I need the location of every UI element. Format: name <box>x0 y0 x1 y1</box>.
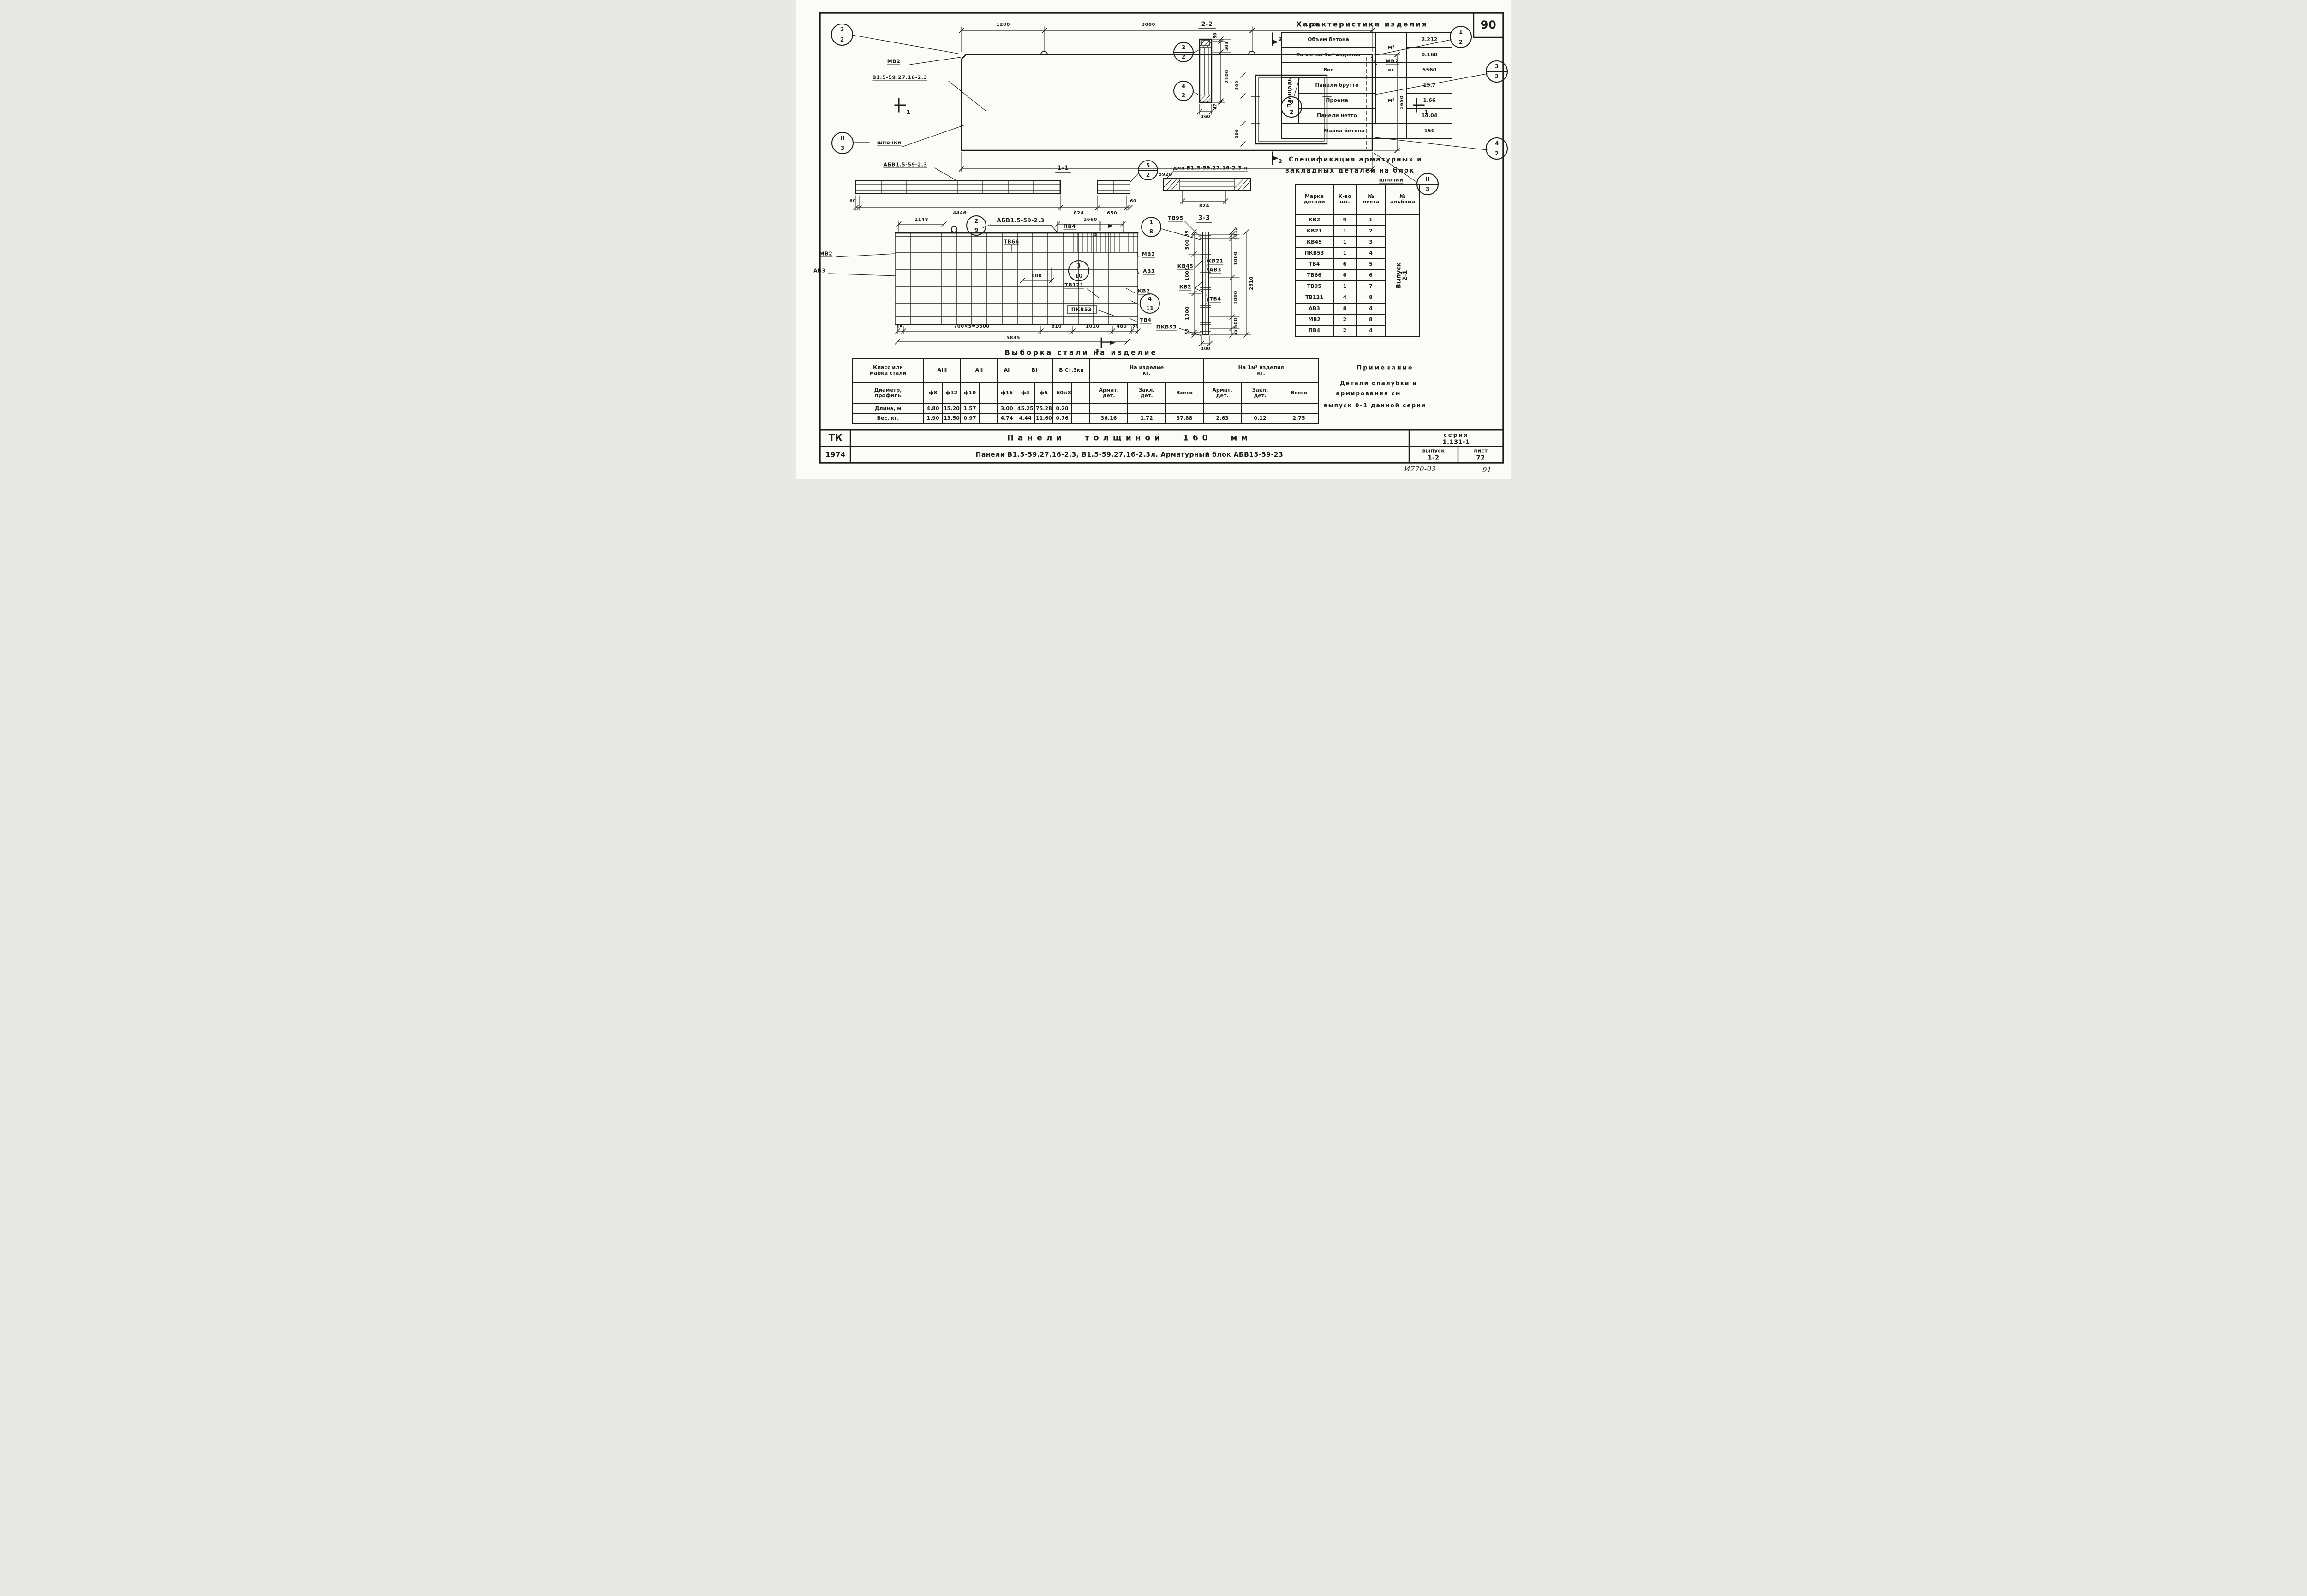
section33-dim-right: 500 <box>1234 318 1238 328</box>
note-line: армирования см <box>1336 391 1401 396</box>
plan-dim: 2650 <box>1400 95 1405 109</box>
section33-dim-left: 500 <box>1185 239 1190 250</box>
section33-label-av3: АВ3 <box>1209 268 1221 273</box>
plan-label-panel-mark: В1.5-59.27.16-2.3 <box>872 75 927 80</box>
spec-album-cell: Выпуск 2-1 <box>1386 214 1420 336</box>
char-unit-weight: кг <box>1375 63 1407 78</box>
char-row-label: Панели нетто <box>1298 108 1375 124</box>
section33-dim-total: 2610 <box>1249 276 1254 290</box>
title-block-year: 1974 <box>825 452 846 459</box>
section22-callout-3-2: 32 <box>1173 42 1194 62</box>
steel-diameter: ф8 <box>924 382 942 404</box>
steel-length <box>1071 404 1090 414</box>
section22-dim: 160 <box>1201 115 1210 119</box>
steel-total: 0.12 <box>1241 414 1279 423</box>
rebar-dim: 700×5=3500 <box>954 324 989 329</box>
section11-dim: 650 <box>1107 211 1117 216</box>
plan-cut1-right-label: 1 <box>1424 109 1428 115</box>
plan-dim: 5920 <box>1159 173 1172 177</box>
plan-cut1-left-label: 1 <box>907 109 911 115</box>
section33-dim-right: 1000 <box>1234 291 1238 304</box>
drawing-sheet: 90 И770-03 91 Характеристика изделия Объ… <box>796 0 1511 479</box>
char-row-label: Марка бетона <box>1281 124 1407 139</box>
char-row-value: 14.04 <box>1407 108 1452 124</box>
char-row-label: Вес <box>1281 63 1375 78</box>
steel-diameter: ф16 <box>998 382 1016 404</box>
steel-diameter: ф12 <box>942 382 961 404</box>
rebar-callout-2-9: 29 <box>966 215 986 236</box>
section33-dim-right: 55 <box>1234 329 1238 336</box>
steel-length: 15.20 <box>942 404 961 414</box>
spec-header-qty: К-вошт. <box>1333 184 1356 214</box>
title-block-main-title: Панели толщиной 160 мм <box>1007 435 1252 442</box>
section22-dim: 50 <box>1214 32 1218 39</box>
rebar-label-av3-left: АВ3 <box>813 268 825 274</box>
characteristics-table: Объем бетона м³ 2.212 То же на 1м² издел… <box>1281 32 1452 139</box>
rebar-callout-4-11: 411 <box>1140 293 1160 314</box>
steel-table-title: Выборка стали на изделие <box>1004 350 1157 357</box>
spec-header-sheet: №листа <box>1356 184 1386 214</box>
section11-label-block: АБВ1.5-59-2.3 <box>883 162 927 167</box>
steel-length: 4.80 <box>924 404 942 414</box>
steel-length: 45.25 <box>1016 404 1034 414</box>
series-value: 1.131-1 <box>1442 440 1470 446</box>
section11-dim: 60 <box>849 200 856 204</box>
sheet-value: 72 <box>1476 455 1485 461</box>
plan-dim: 300 <box>1236 81 1240 90</box>
rebar-label-av3-right: АВ3 <box>1143 269 1155 274</box>
char-row-value: 150 <box>1407 124 1452 139</box>
page-number-handwritten: 91 <box>1482 467 1492 474</box>
steel-group: АII <box>961 358 998 382</box>
steel-total: 36.16 <box>1090 414 1128 423</box>
rebar-label-tv4: ТВ4 <box>1140 318 1151 323</box>
char-row-label: Объем бетона <box>1281 32 1375 48</box>
title-block-subtitle: Панели В1.5-59.27.16-2.3, В1.5-59.27.16-… <box>976 452 1284 458</box>
section22-dim: 503 <box>1225 42 1230 51</box>
steel-diameter: ф4 <box>1016 382 1034 404</box>
plan-dim: 300 <box>1236 129 1240 138</box>
steel-row-weight: Вес, кг. <box>852 414 924 423</box>
steel-sub-header: Армат.дет. <box>1203 382 1241 404</box>
section11-callout-5-2: 52 <box>1138 160 1158 180</box>
plan-dim: 3000 <box>1142 23 1155 27</box>
detail-l-linework <box>1163 171 1251 204</box>
rebar-dim: 480 <box>1117 324 1127 329</box>
section33-dim-right: 1000 <box>1234 251 1238 265</box>
section11-dim: 824 <box>1074 211 1084 216</box>
steel-length: 75.28 <box>1034 404 1053 414</box>
rebar-dim: 15 <box>897 326 903 330</box>
doc-code-handwritten: И770-03 <box>1404 466 1436 473</box>
plan-callout-key-left: II3 <box>831 132 854 154</box>
spec-album-issue: Выпуск 2-1 <box>1396 260 1410 291</box>
section33-dim-left: 1000 <box>1185 306 1190 320</box>
steel-total: 2.63 <box>1203 414 1241 423</box>
section33-label-tv95: ТВ95 <box>1168 216 1183 221</box>
spec-header-album: №альбома <box>1386 184 1420 214</box>
steel-corner: Класс илимарка стали <box>852 358 924 382</box>
section11-dim: 60 <box>1130 200 1136 204</box>
steel-diameter: ф10 <box>961 382 979 404</box>
section33-dim-left: 1000 <box>1185 267 1190 281</box>
plan-label-shponki-right: шпонки <box>1379 178 1404 183</box>
steel-group: ВI <box>1016 358 1053 382</box>
note-line: Детали опалубки и <box>1340 381 1417 386</box>
sheet-label: лист <box>1474 448 1488 453</box>
rebar-label-mv2-right: МВ2 <box>1142 252 1155 257</box>
steel-row-diameter: Диаметр,профиль <box>852 382 924 404</box>
steel-sub-header: Всего <box>1165 382 1203 404</box>
spec-title-line2: закладных деталей на блок <box>1285 167 1415 174</box>
char-row-value: 5560 <box>1407 63 1452 78</box>
section33-dim-right: 40 <box>1234 233 1238 240</box>
plan-callout-2-2: 22 <box>831 24 853 46</box>
steel-weight: 13.50 <box>942 414 961 423</box>
rebar-cut3-top-label: 3 <box>1094 232 1098 237</box>
plan-dim: 1200 <box>996 23 1010 27</box>
section-1-1-linework <box>854 168 1138 210</box>
steel-length <box>979 404 998 414</box>
steel-weight <box>979 414 998 423</box>
steel-weight: 0.97 <box>961 414 979 423</box>
rebar-label-kv2: КВ2 <box>1138 289 1150 294</box>
steel-sub-header: Всего <box>1279 382 1319 404</box>
plan-label-mv2-left: МВ2 <box>887 59 900 64</box>
spec-title-line1: Спецификация арматурных и <box>1289 156 1422 163</box>
rebar-label-pkv53: ПКВ53 <box>1071 307 1092 312</box>
detail-l-dim: 824 <box>1199 204 1209 208</box>
detail-l-label: для В1.5-59.27.16-2.3 л <box>1173 166 1248 171</box>
char-row-label: Панели брутто <box>1298 78 1375 93</box>
section33-dim-100: 100 <box>1201 347 1210 351</box>
plan-callout-key-right: II3 <box>1416 173 1439 195</box>
rebar-label-pv4: ПВ4 <box>1064 224 1076 229</box>
steel-length: 0.20 <box>1053 404 1071 414</box>
steel-col-product: На изделиекг. <box>1090 358 1203 382</box>
note-title: Примечание <box>1357 365 1413 371</box>
spec-header-mark: Маркадетали <box>1295 184 1333 214</box>
section11-dim: 4446 <box>953 211 967 216</box>
plan-callout-3-2: 32 <box>1486 60 1508 83</box>
steel-total: 37.88 <box>1165 414 1203 423</box>
rebar-label-mv2-left: МВ2 <box>819 251 832 256</box>
plan-label-mv2-right: МВ2 <box>1386 59 1399 64</box>
rebar-dim: 1660 <box>1083 218 1097 222</box>
section33-label-pkv53: ПКВ53 <box>1156 325 1177 330</box>
plan-callout-4-2: 42 <box>1486 137 1508 160</box>
section22-callout-4-2: 42 <box>1173 81 1194 101</box>
char-row-value: 2.212 <box>1407 32 1452 48</box>
section33-label-kv21: КВ21 <box>1207 259 1224 264</box>
plan-cut2-bottom-label: 2 <box>1279 159 1283 164</box>
spec-row: КВ291 Выпуск 2-1 <box>1295 214 1420 226</box>
plan-cut2-top-label: 2 <box>1279 36 1283 42</box>
char-row-label: Проема <box>1298 93 1375 108</box>
steel-sub-header: Закл.дет. <box>1241 382 1279 404</box>
steel-weight: 4.74 <box>998 414 1016 423</box>
series-label: серия <box>1444 432 1469 438</box>
section33-label-kv2: КВ2 <box>1179 285 1192 290</box>
steel-weight <box>1071 414 1090 423</box>
char-row-value: 15.7 <box>1407 78 1452 93</box>
rebar-callout-3-10: 310 <box>1068 260 1089 281</box>
steel-weight: 4.44 <box>1016 414 1034 423</box>
steel-diameter: ф5 <box>1034 382 1053 404</box>
section-2-2-title: 2-2 <box>1201 22 1213 28</box>
steel-diameter <box>1071 382 1090 404</box>
rebar-label-block: АБВ1.5-59-2.3 <box>997 218 1044 223</box>
steel-total: 1.72 <box>1128 414 1165 423</box>
section33-label-tv4: ТВ4 <box>1209 297 1221 302</box>
steel-length: 1.57 <box>961 404 979 414</box>
steel-group: В Ст.3кп <box>1053 358 1090 382</box>
steel-diameter <box>979 382 998 404</box>
char-row-value: 1.66 <box>1407 93 1452 108</box>
section33-callout-1-8: 18 <box>1141 217 1161 237</box>
section22-dim: 2100 <box>1225 70 1230 83</box>
rebar-dim: 20 <box>1132 326 1139 330</box>
issue-value: 1-2 <box>1428 455 1440 461</box>
rebar-dim: 810 <box>1052 324 1062 329</box>
steel-table: Класс илимарка стали АIII АII АI ВI В Ст… <box>852 358 1319 424</box>
rebar-dim: 1010 <box>1086 324 1100 329</box>
char-row-value: 0.160 <box>1407 48 1452 63</box>
issue-label: выпуск <box>1422 448 1445 453</box>
title-block-org: ТК <box>829 433 843 442</box>
steel-group: АI <box>998 358 1016 382</box>
plan-dim: 1720 <box>1305 23 1319 27</box>
rebar-dim: 5835 <box>1006 336 1020 340</box>
rebar-cut3-bottom-label: 3 <box>1095 348 1100 354</box>
steel-weight: 0.76 <box>1053 414 1071 423</box>
steel-row-length: Длина, м <box>852 404 924 414</box>
plan-callout-6-2: 62 <box>1281 96 1302 118</box>
note-line: выпуск 0-1 данной серии <box>1324 403 1426 408</box>
steel-group: АIII <box>924 358 961 382</box>
plan-callout-1-2: 12 <box>1450 26 1472 48</box>
rebar-dim: 500 <box>1032 274 1042 279</box>
char-row-label: То же на 1м² изделия <box>1281 48 1375 63</box>
steel-sub-header: Армат.дет. <box>1090 382 1128 404</box>
section33-dim-right: 15 <box>1234 227 1238 233</box>
steel-col-per-m2: На 1м² изделиякг. <box>1203 358 1319 382</box>
steel-weight: 1.90 <box>924 414 942 423</box>
rebar-dim: 1148 <box>914 218 928 222</box>
steel-weight: 11.60 <box>1034 414 1053 423</box>
section22-dim: 47 <box>1214 103 1218 110</box>
section-3-3-title: 3-3 <box>1199 215 1210 221</box>
plan-label-shponki-left: шпонки <box>877 140 902 145</box>
rebar-label-tv66: ТВ66 <box>1004 239 1019 244</box>
steel-diameter: -60×8 <box>1053 382 1071 404</box>
section33-dim-left: 55 <box>1186 328 1190 335</box>
steel-length: 3.00 <box>998 404 1016 414</box>
steel-sub-header: Закл.дет. <box>1128 382 1165 404</box>
specification-table: Маркадетали К-вошт. №листа №альбома КВ29… <box>1295 184 1420 337</box>
corner-sheet-number: 90 <box>1481 19 1496 30</box>
section33-dim-left: 55 <box>1186 230 1190 237</box>
rebar-label-tv121: ТВ121 <box>1064 283 1083 288</box>
steel-total: 2.75 <box>1279 414 1319 423</box>
section-1-1-title: 1-1 <box>1058 166 1069 172</box>
